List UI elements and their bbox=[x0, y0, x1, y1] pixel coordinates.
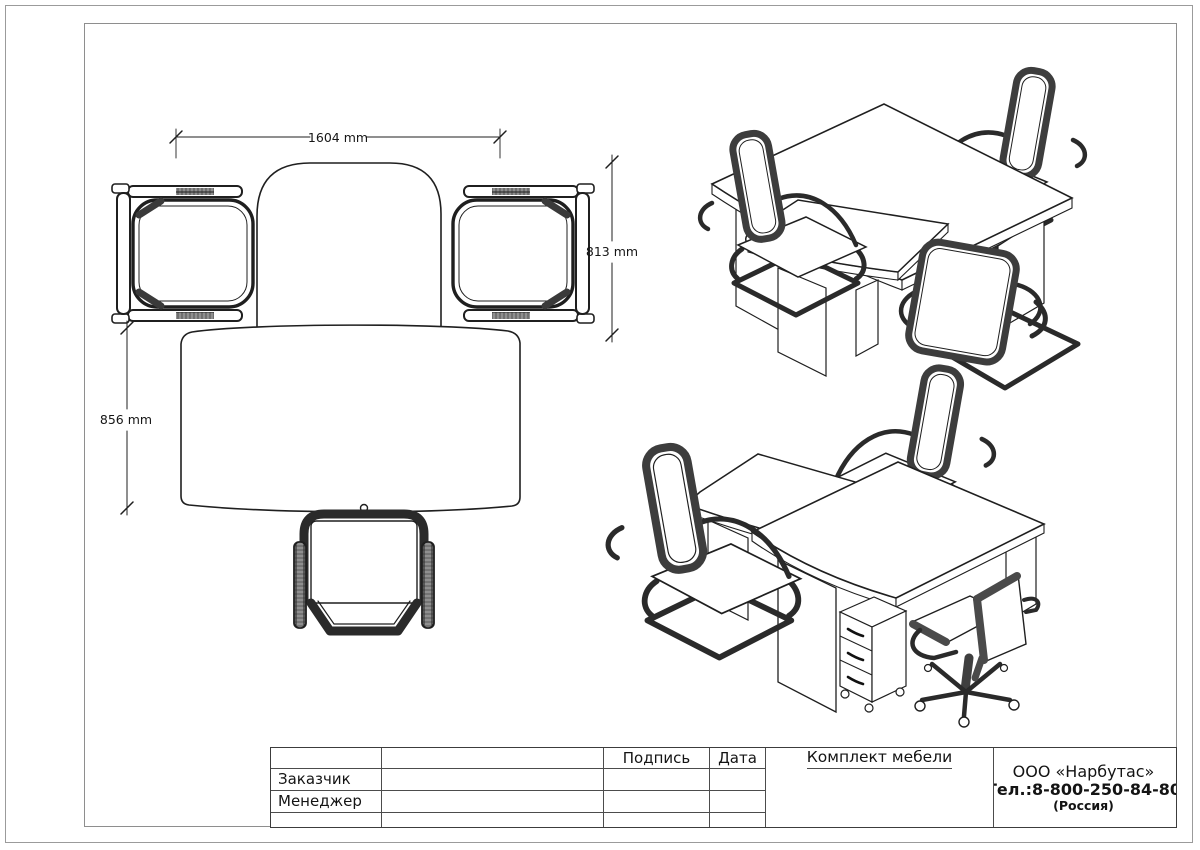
company-info-cell: ООО «Нарбутас» Тел.:8-800-250-84-80 (Рос… bbox=[994, 748, 1176, 827]
title-block: Подпись Дата Комплект мебели ООО «Нарбут… bbox=[270, 747, 1177, 828]
date-header-cell: Дата bbox=[710, 748, 766, 769]
company-country: (Россия) bbox=[1053, 800, 1114, 813]
project-title: Комплект мебели bbox=[807, 748, 952, 769]
empty-cell bbox=[271, 813, 382, 827]
plan-view: 1604 mm 813 mm 856 mm bbox=[100, 129, 638, 631]
dimension-side-depth: 813 mm bbox=[586, 155, 638, 342]
plan-visitor-chair-right bbox=[453, 184, 594, 323]
iso-view-back bbox=[700, 68, 1085, 388]
drawing-sheet: 1604 mm 813 mm 856 mm bbox=[0, 0, 1200, 850]
manager-value-cell bbox=[382, 791, 604, 813]
manager-date-cell bbox=[710, 791, 766, 813]
plan-return-desk bbox=[257, 163, 441, 336]
manager-signature-cell bbox=[604, 791, 710, 813]
customer-date-cell bbox=[710, 769, 766, 791]
plan-main-desk bbox=[181, 325, 520, 512]
iso-view-front bbox=[608, 366, 1044, 727]
iso1-chair-front bbox=[901, 240, 1078, 388]
empty-cell bbox=[382, 813, 604, 827]
empty-cell bbox=[271, 748, 382, 769]
project-title-cell: Комплект мебели bbox=[766, 748, 994, 827]
dimension-width: 1604 mm bbox=[170, 129, 506, 158]
empty-cell bbox=[382, 748, 604, 769]
manager-label-cell: Менеджер bbox=[271, 791, 382, 813]
dim-side-depth-label: 813 mm bbox=[586, 244, 638, 259]
empty-cell bbox=[710, 813, 766, 827]
empty-cell bbox=[604, 813, 710, 827]
dim-front-depth-label: 856 mm bbox=[100, 412, 152, 427]
customer-signature-cell bbox=[604, 769, 710, 791]
iso2-swivel-chair bbox=[912, 574, 1038, 727]
company-phone: Тел.:8-800-250-84-80 bbox=[994, 782, 1176, 798]
technical-drawing: 1604 mm 813 mm 856 mm bbox=[0, 0, 1200, 850]
customer-label-cell: Заказчик bbox=[271, 769, 382, 791]
iso2-drawer-pedestal bbox=[840, 597, 906, 712]
company-name: ООО «Нарбутас» bbox=[1013, 764, 1155, 780]
plan-operator-chair bbox=[294, 514, 434, 631]
dim-width-label: 1604 mm bbox=[308, 130, 368, 145]
plan-visitor-chair-left bbox=[112, 184, 253, 323]
signature-header-cell: Подпись bbox=[604, 748, 710, 769]
dimension-front-depth: 856 mm bbox=[100, 321, 152, 515]
customer-value-cell bbox=[382, 769, 604, 791]
